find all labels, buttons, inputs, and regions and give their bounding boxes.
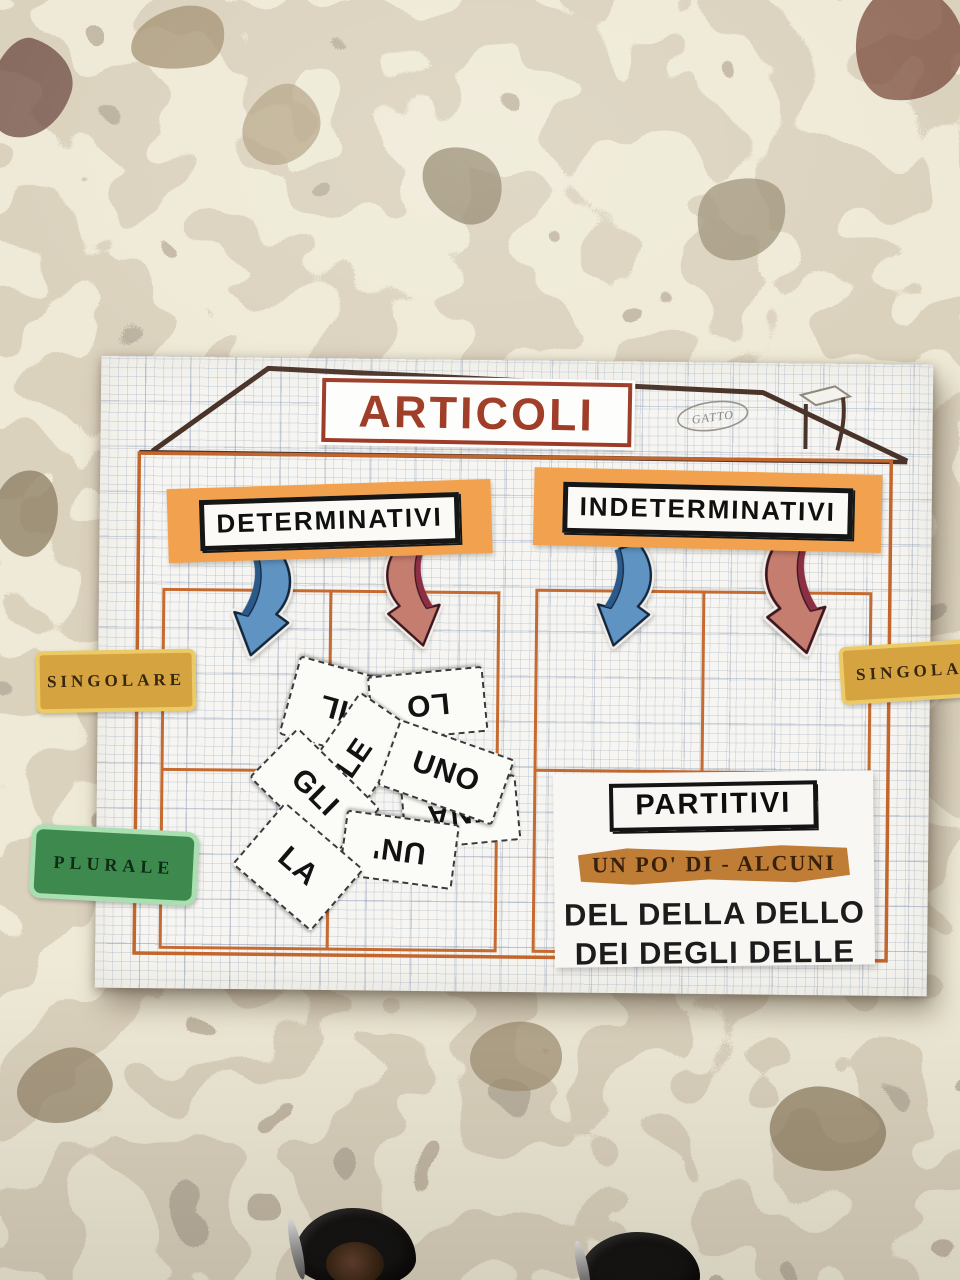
chimney-drawing [800, 386, 850, 451]
articoli-title-card: ARTICOLI [318, 375, 635, 451]
handwritten-note-circle: GATTO [676, 398, 749, 435]
label-singolare-left-text: SINGOLARE [47, 670, 185, 692]
determinativi-label-card: DETERMINATIVI [167, 479, 493, 563]
label-plurale-left-text: PLURALE [53, 851, 175, 878]
partitivi-articles: DEL DELLA DELLO DEI DEGLI DELLE [564, 894, 866, 975]
articoli-title-border: ARTICOLI [321, 378, 632, 447]
partitivi-line-2: DEI DEGLI DELLE [564, 932, 865, 974]
partitivi-highlight-strip: UN PO' DI - ALCUNI [578, 844, 850, 887]
partitivi-title-border: PARTITIVI [609, 780, 818, 832]
article-card-text: UN' [370, 829, 427, 870]
page-title: ARTICOLI [358, 388, 595, 437]
arrow-down-blue-icon [586, 533, 667, 658]
partitivi-highlight-text: UN PO' DI - ALCUNI [592, 850, 836, 878]
determinativi-label-border: DETERMINATIVI [199, 491, 461, 550]
handwritten-note: GATTO [691, 407, 735, 426]
article-card-text: LO [404, 685, 451, 723]
label-singolare-left: SINGOLARE [35, 649, 196, 714]
article-card-text: LA [271, 840, 325, 893]
indeterminativi-label-border: INDETERMINATIVI [562, 481, 853, 539]
indeterminativi-label-card: INDETERMINATIVI [533, 467, 883, 553]
indeterminativi-label: INDETERMINATIVI [579, 491, 836, 527]
determinativi-label: DETERMINATIVI [216, 501, 443, 538]
label-plurale-left: PLURALE [28, 824, 200, 907]
label-singolare-right-text: SINGOLARE [856, 657, 960, 685]
partitivi-line-1: DEL DELLA DELLO [564, 894, 865, 936]
partitivi-title: PARTITIVI [635, 787, 792, 822]
shoe-mesh-patch [326, 1242, 384, 1280]
partitivi-sheet: PARTITIVI UN PO' DI - ALCUNI DEL DELLA D… [553, 770, 875, 967]
label-singolare-right: SINGOLARE [838, 637, 960, 705]
photo-scene: GATTO [0, 0, 960, 1280]
articoli-poster: GATTO [95, 356, 934, 997]
article-card-text: UNO [407, 745, 484, 800]
